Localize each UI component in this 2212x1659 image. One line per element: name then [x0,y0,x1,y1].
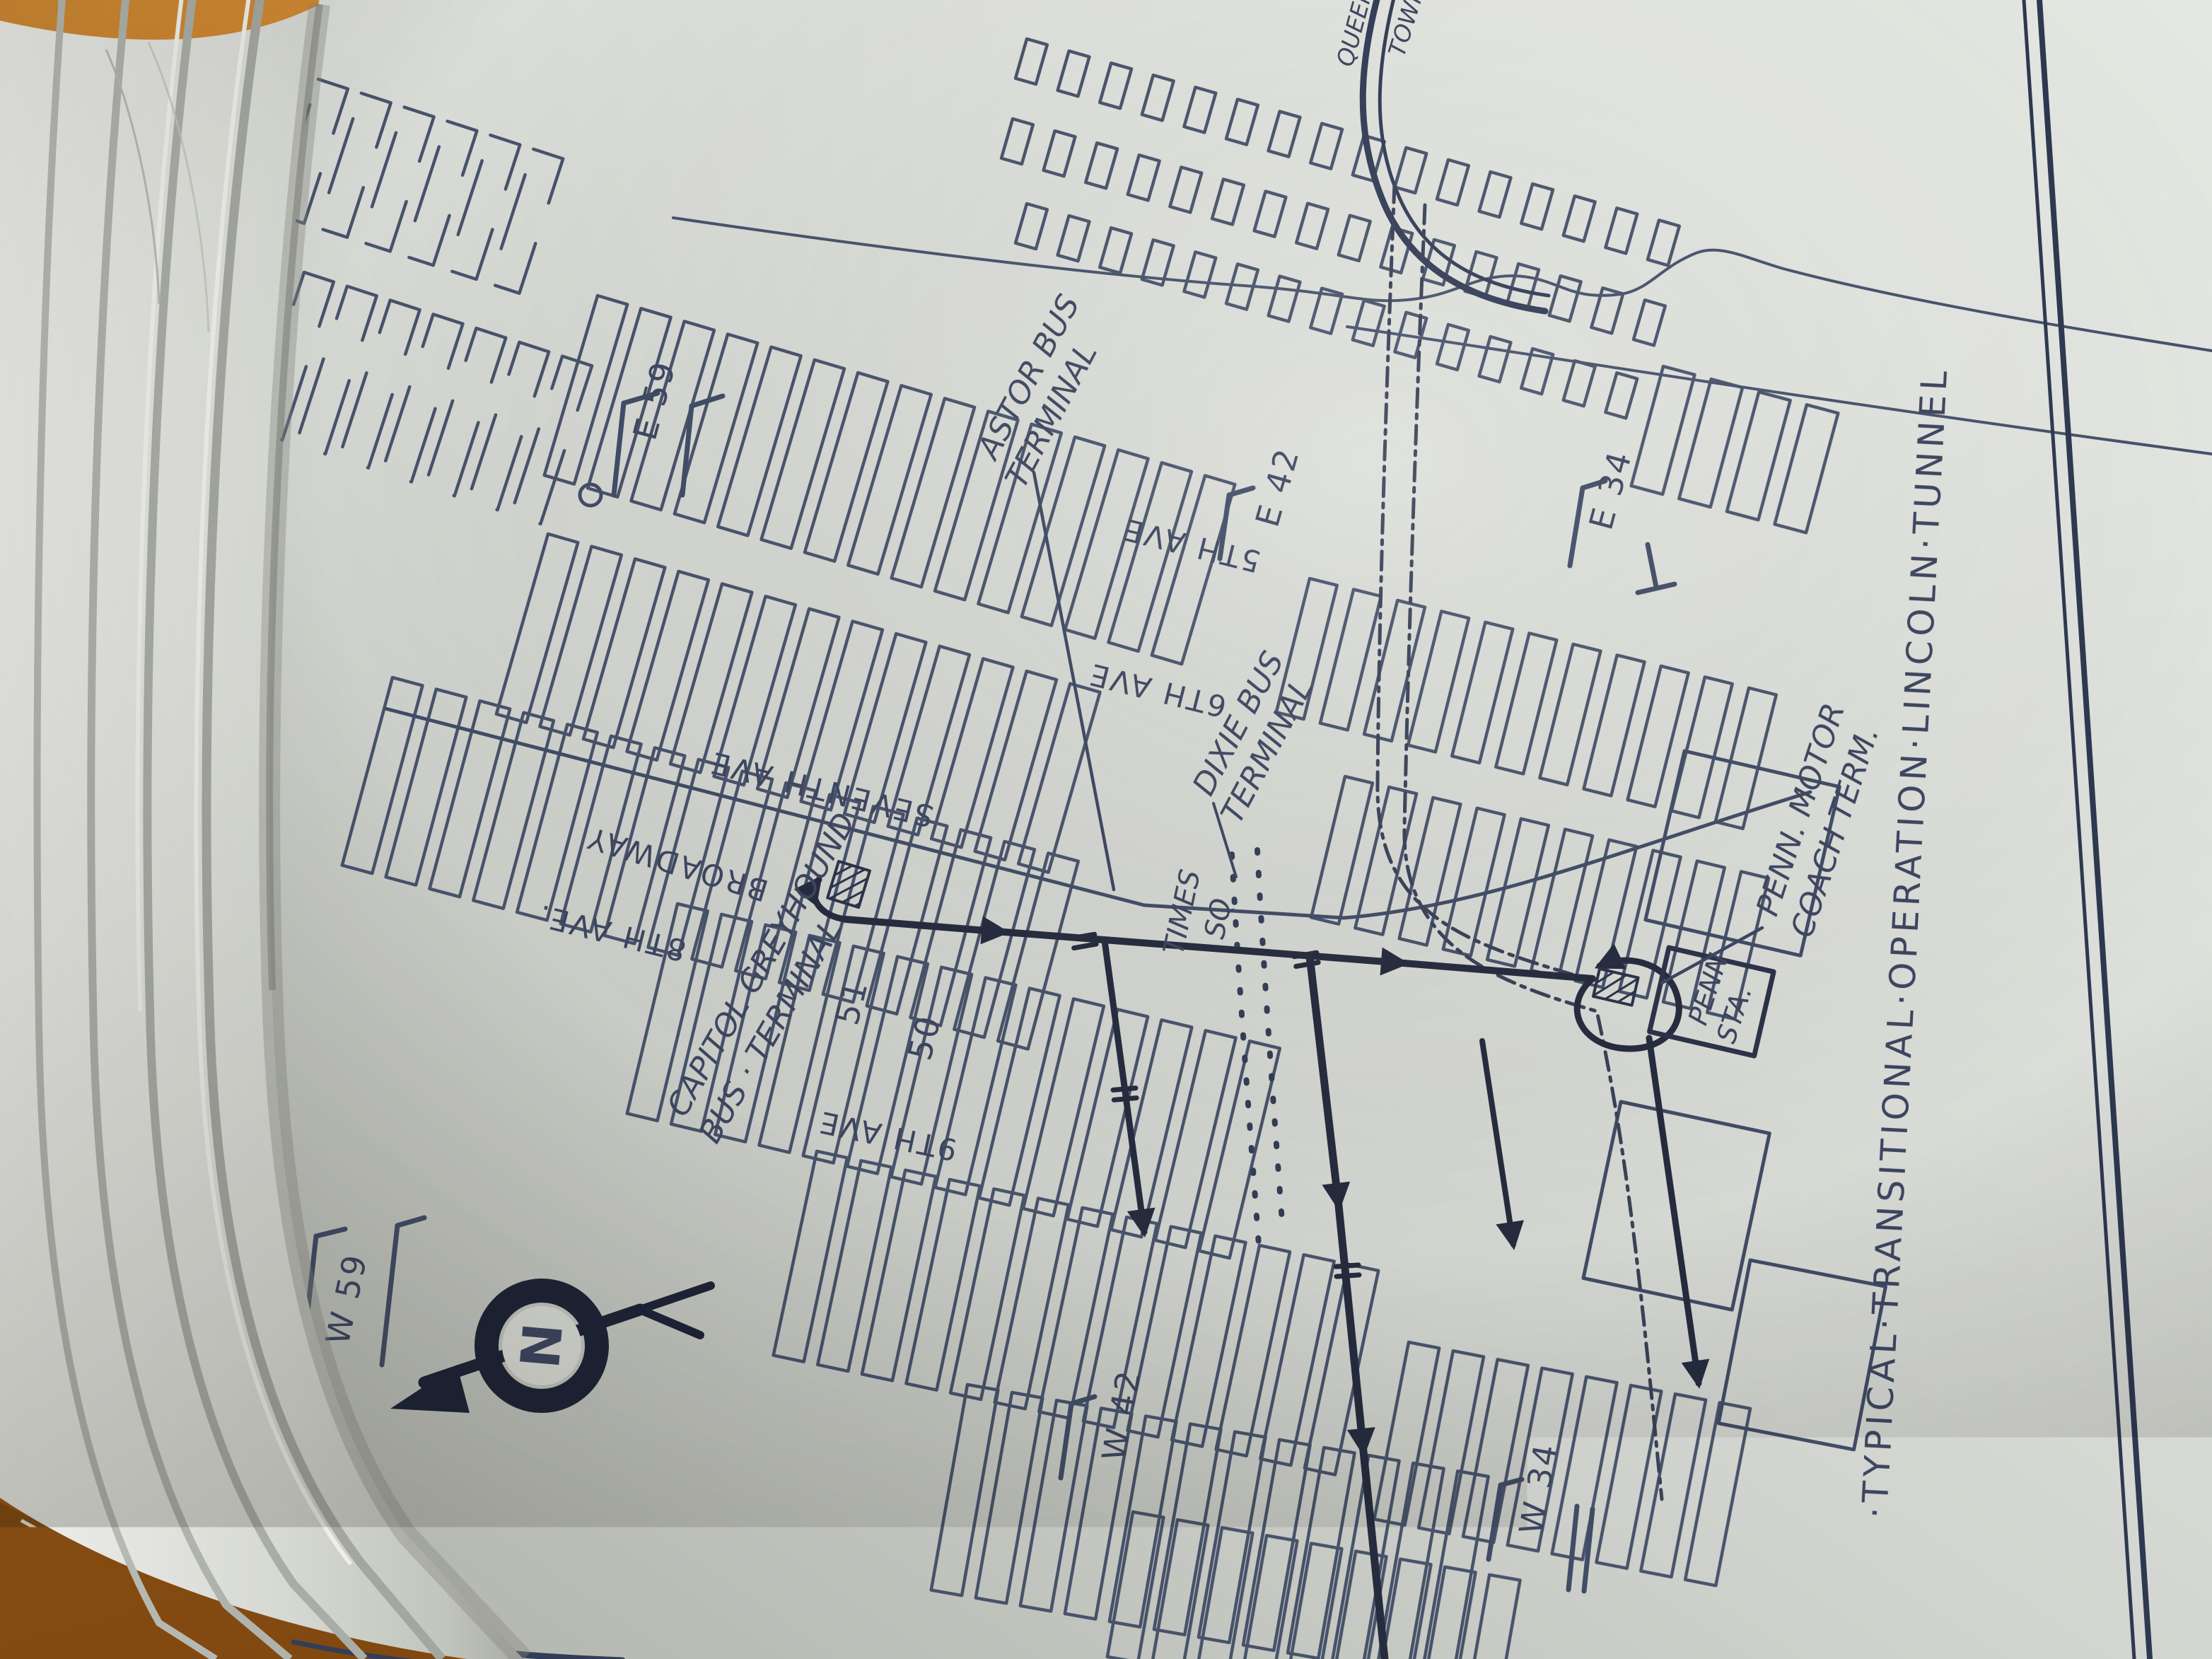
photo-vignette [0,0,2212,1659]
map-photo: QUEENS TOWN [0,0,2212,1659]
book-photo-scene: QUEENS TOWN [0,0,2212,1659]
